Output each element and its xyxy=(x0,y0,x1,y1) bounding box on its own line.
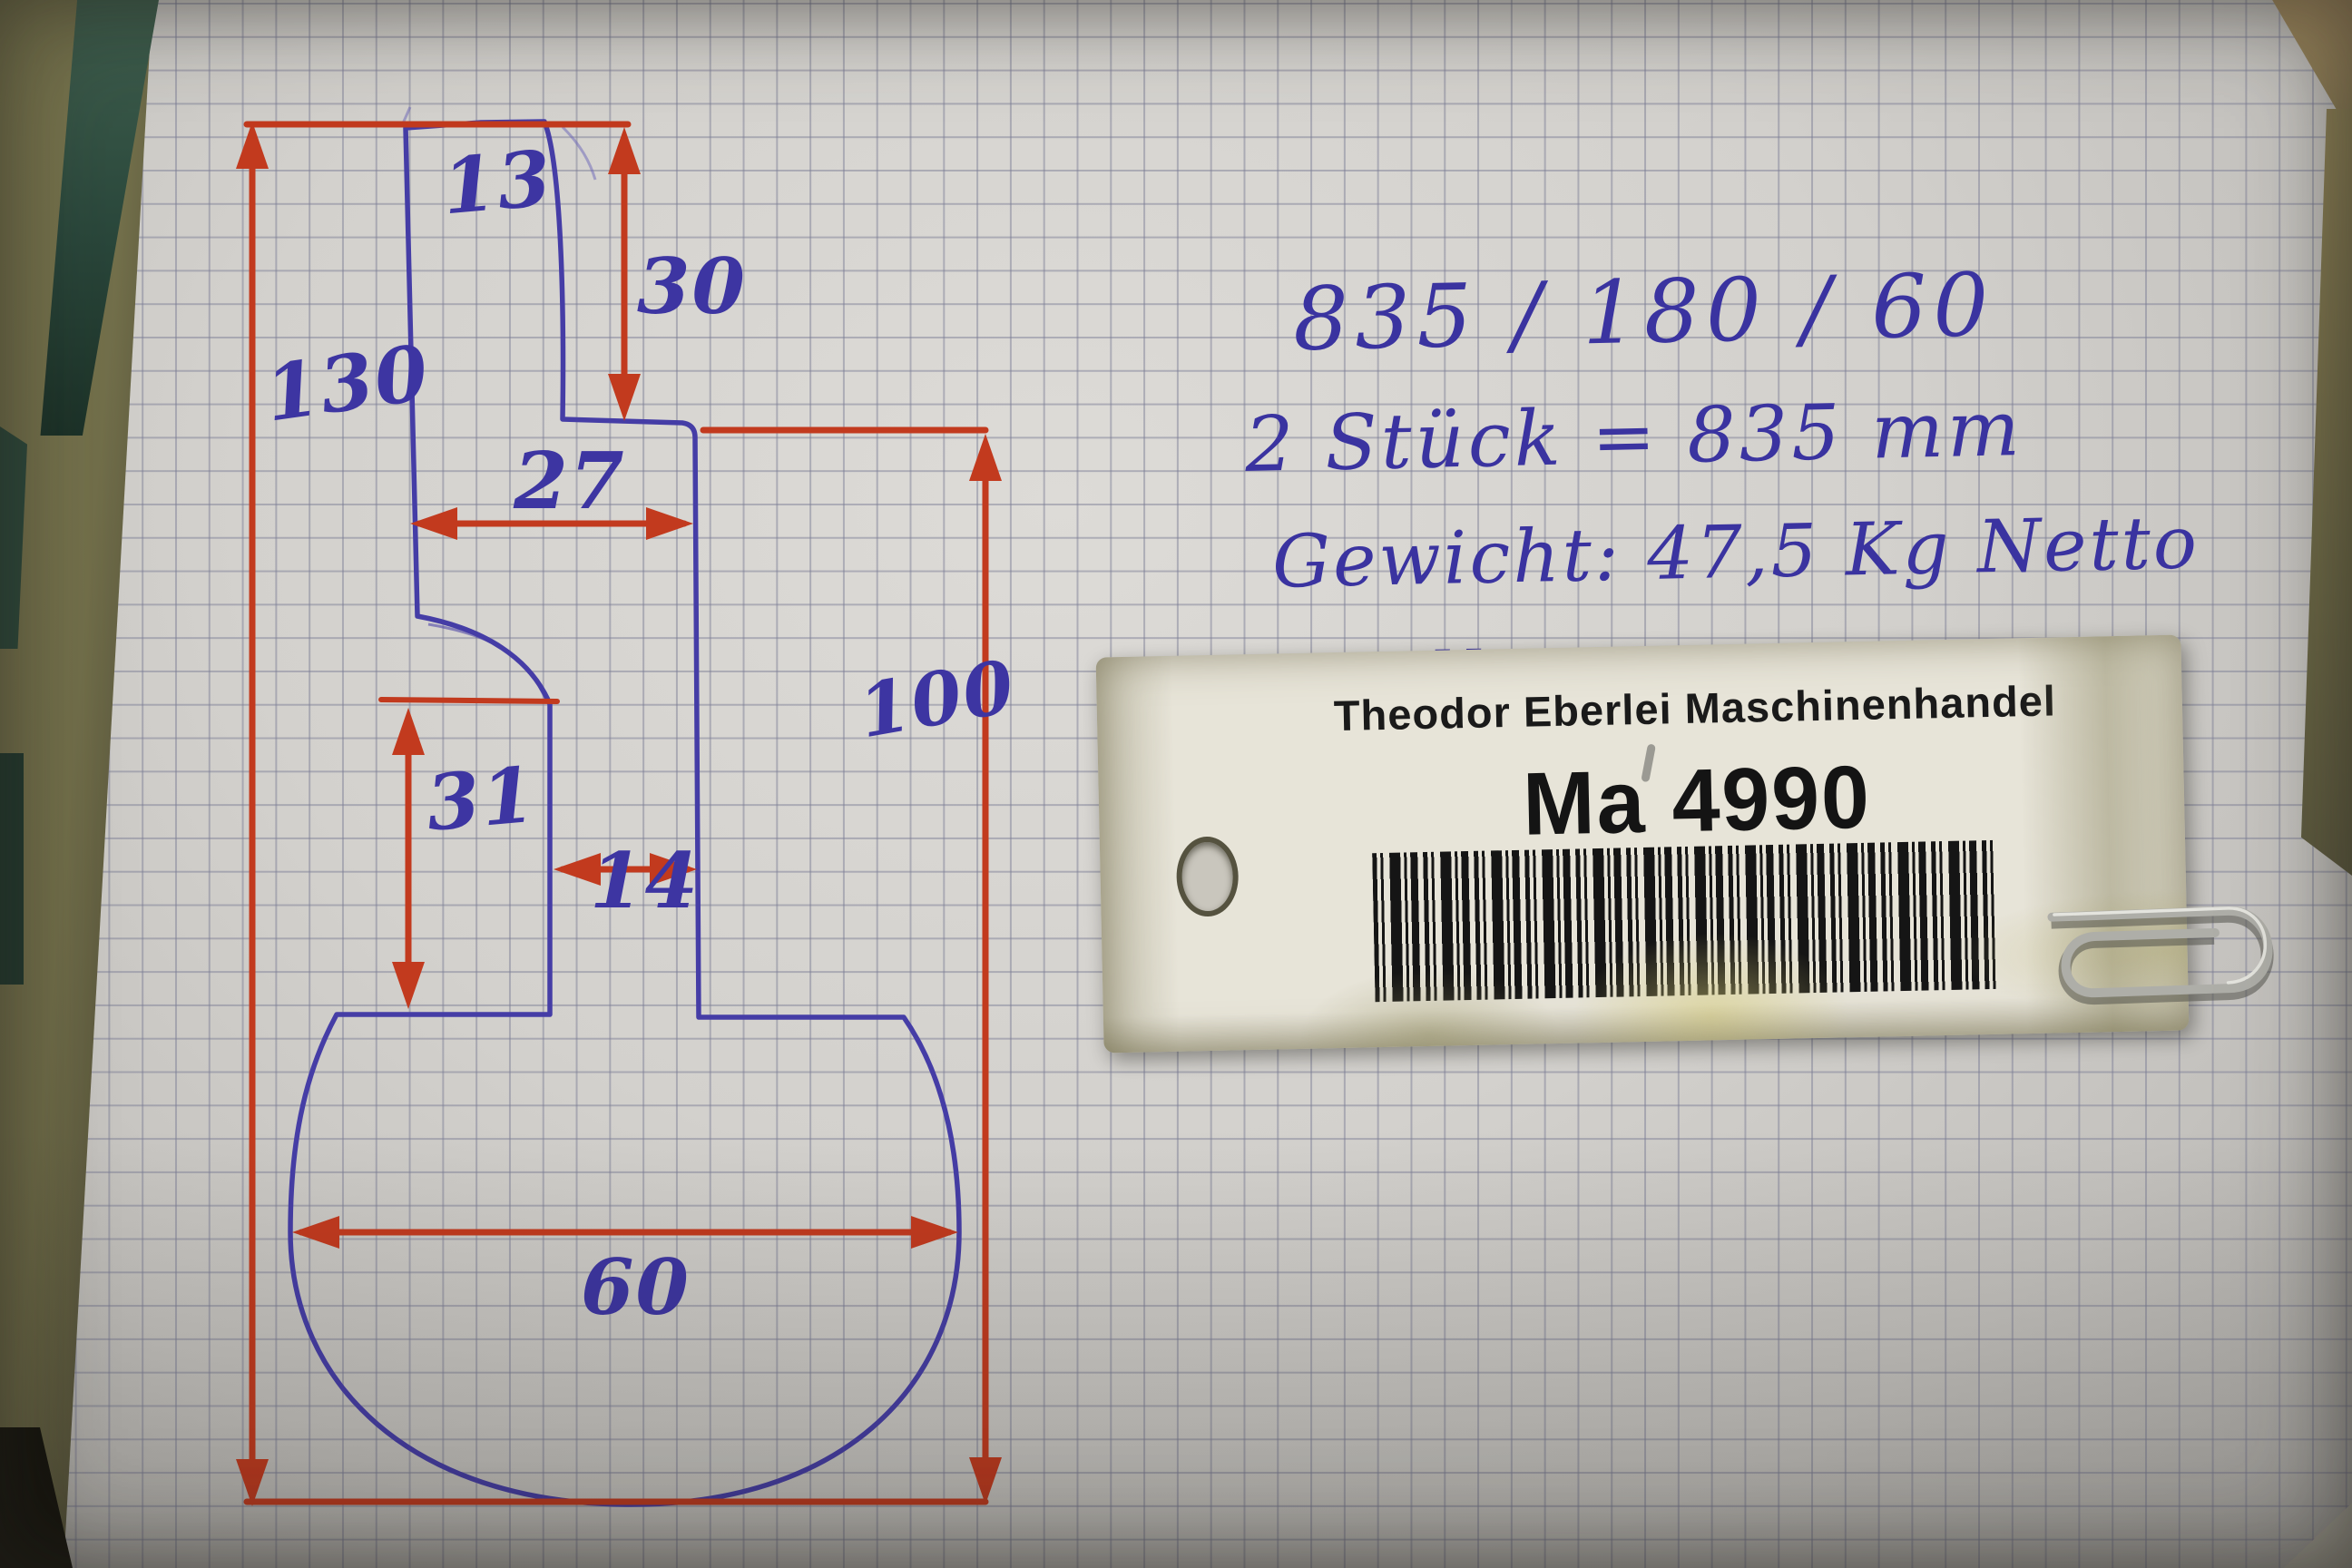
dimension-label-130: 130 xyxy=(260,327,435,438)
dimension-label-14: 14 xyxy=(590,836,700,926)
tag-punch-hole xyxy=(1176,836,1240,916)
inventory-tag: Theodor Eberlei Maschinenhandel Ma 4990 xyxy=(1096,635,2190,1053)
photo-of-technical-sketch: 13 30 130 27 31 14 100 60 835 / 180 / 60… xyxy=(0,0,2352,1568)
dimension-label-27: 27 xyxy=(513,436,626,527)
note-line-dimensions: 835 / 180 / 60 xyxy=(1292,254,1996,370)
barcode xyxy=(1372,840,1997,1002)
dimension-label-13: 13 xyxy=(439,132,556,231)
dimension-label-30: 30 xyxy=(637,241,747,331)
pen-retrace-chamfer xyxy=(428,624,546,701)
dim-tick-31 xyxy=(381,700,557,701)
dimension-label-60: 60 xyxy=(581,1242,691,1332)
dimension-label-100: 100 xyxy=(853,643,1023,755)
tag-id-number: Ma 4990 xyxy=(1248,740,2146,861)
note-line-quantity: 2 Stück = 835 mm xyxy=(1244,384,2024,489)
tag-company-name: Theodor Eberlei Maschinenhandel xyxy=(1232,673,2157,742)
dimension-label-31: 31 xyxy=(423,750,540,848)
